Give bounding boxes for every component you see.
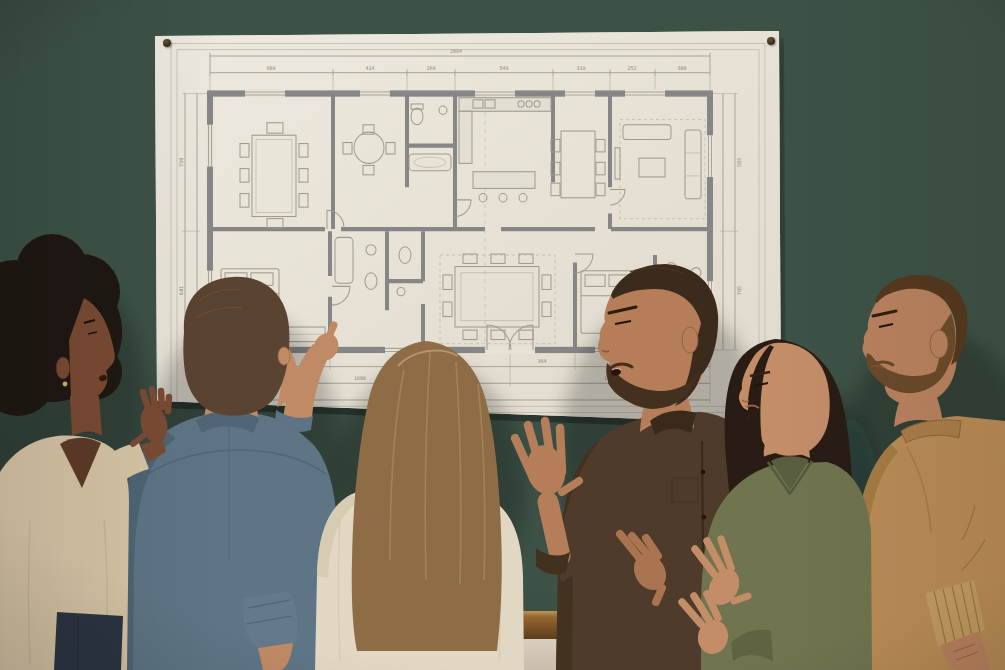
dim-label: 1008 bbox=[414, 358, 426, 364]
dim-label: 1120 bbox=[604, 375, 616, 381]
dim-label: 756 bbox=[637, 358, 646, 364]
dim-label: 252 bbox=[627, 64, 636, 70]
dim-label: 414 bbox=[365, 64, 374, 70]
blueprint-poster: 2804 689 414 269 549 319 252 308 672 100… bbox=[155, 31, 781, 425]
dim-label: 585 bbox=[736, 158, 742, 167]
dim-label: 364 bbox=[537, 358, 546, 364]
dim-total: 2804 bbox=[450, 392, 462, 398]
dim-label: 672 bbox=[265, 358, 274, 364]
dim-label: 739 bbox=[178, 158, 184, 167]
dim-top-total: 2804 bbox=[450, 48, 462, 54]
pushpin-top-right-icon bbox=[767, 37, 775, 45]
dim-label: 308 bbox=[677, 64, 686, 70]
dim-label: 549 bbox=[499, 64, 508, 70]
chalk-tray bbox=[0, 611, 1005, 639]
dim-label: 319 bbox=[576, 64, 585, 70]
dim-label: 795 bbox=[736, 286, 742, 295]
pushpin-top-left-icon bbox=[163, 39, 171, 47]
scene: 2804 689 414 269 549 319 252 308 672 100… bbox=[0, 0, 1005, 670]
dim-label: 269 bbox=[426, 64, 435, 70]
dim-label: 641 bbox=[178, 286, 184, 295]
wainscot-wall bbox=[0, 639, 1005, 670]
floor-plan-drawing: 2804 689 414 269 549 319 252 308 672 100… bbox=[155, 31, 781, 425]
dim-label: 689 bbox=[266, 64, 275, 70]
dim-label: 1680 bbox=[354, 375, 366, 381]
